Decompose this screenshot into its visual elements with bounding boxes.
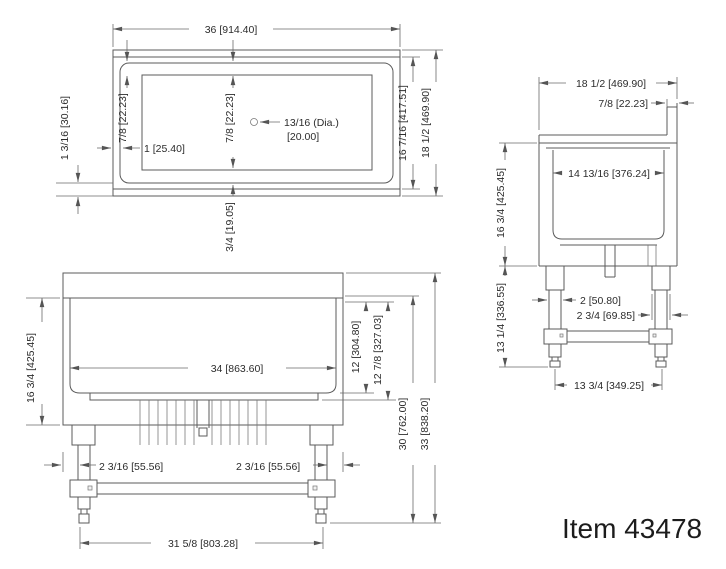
dim-plan-hole-dia: 13/16 (Dia.)	[284, 117, 339, 129]
dim-plan-inner-depth: 16 7/16 [417.51]	[397, 85, 409, 161]
dim-front-counter-height: 30 [762.00]	[397, 398, 409, 451]
dim-front-inner-width: 34 [863.60]	[211, 363, 264, 375]
dim-side-overall-depth: 18 1/2 [469.90]	[576, 78, 646, 90]
dim-plan-overall-depth: 18 1/2 [469.90]	[420, 88, 432, 158]
dim-plan-edge-front: 1 3/16 [30.16]	[59, 96, 71, 160]
dim-plan-rim-left: 7/8 [22.23]	[117, 93, 129, 143]
dim-side-gusset-width: 2 3/4 [69.85]	[577, 310, 635, 322]
dim-side-leg-width: 2 [50.80]	[580, 295, 621, 307]
dim-plan-rim-center: 7/8 [22.23]	[224, 93, 236, 143]
dim-front-basin-drop-outer: 12 7/8 [327.03]	[372, 315, 384, 385]
front-view: 34 [863.60] 16 3/4 [425.45] 12 [304.80] …	[25, 273, 441, 550]
dim-side-body-height: 16 3/4 [425.45]	[495, 168, 507, 238]
plan-view: 36 [914.40] 7/8 [22.23] 7/8 [22.23] 13/1…	[56, 24, 443, 252]
dim-side-inner-depth: 14 13/16 [376.24]	[568, 168, 650, 180]
dim-front-body-height: 16 3/4 [425.45]	[25, 333, 37, 403]
dim-front-overall-height: 33 [838.20]	[419, 398, 431, 451]
dim-side-foot-span: 13 3/4 [349.25]	[574, 380, 644, 392]
side-view: 18 1/2 [469.90] 7/8 [22.23] 14 13/16 [37…	[495, 77, 694, 392]
dim-plan-rim-bottom: 3/4 [19.05]	[224, 202, 236, 252]
dim-front-basin-drop: 12 [304.80]	[350, 321, 362, 374]
dim-side-splash-thickness: 7/8 [22.23]	[598, 98, 648, 110]
dim-front-leg-inset-right: 2 3/16 [55.56]	[236, 461, 300, 473]
engineering-drawing-sheet: 36 [914.40] 7/8 [22.23] 7/8 [22.23] 13/1…	[0, 0, 726, 569]
dim-front-leg-span: 31 5/8 [803.28]	[168, 538, 238, 550]
drawing-canvas: 36 [914.40] 7/8 [22.23] 7/8 [22.23] 13/1…	[0, 0, 726, 569]
item-number-label: Item 43478	[562, 513, 702, 544]
dim-plan-hole-dia-mm: [20.00]	[287, 131, 319, 143]
dim-plan-rim-side: 1 [25.40]	[144, 143, 185, 155]
drain-hole	[251, 119, 258, 126]
drain-outlet	[199, 428, 207, 436]
dim-front-leg-inset-left: 2 3/16 [55.56]	[99, 461, 163, 473]
dim-side-leg-height: 13 1/4 [336.55]	[495, 283, 507, 353]
dim-plan-overall-width: 36 [914.40]	[205, 24, 258, 36]
